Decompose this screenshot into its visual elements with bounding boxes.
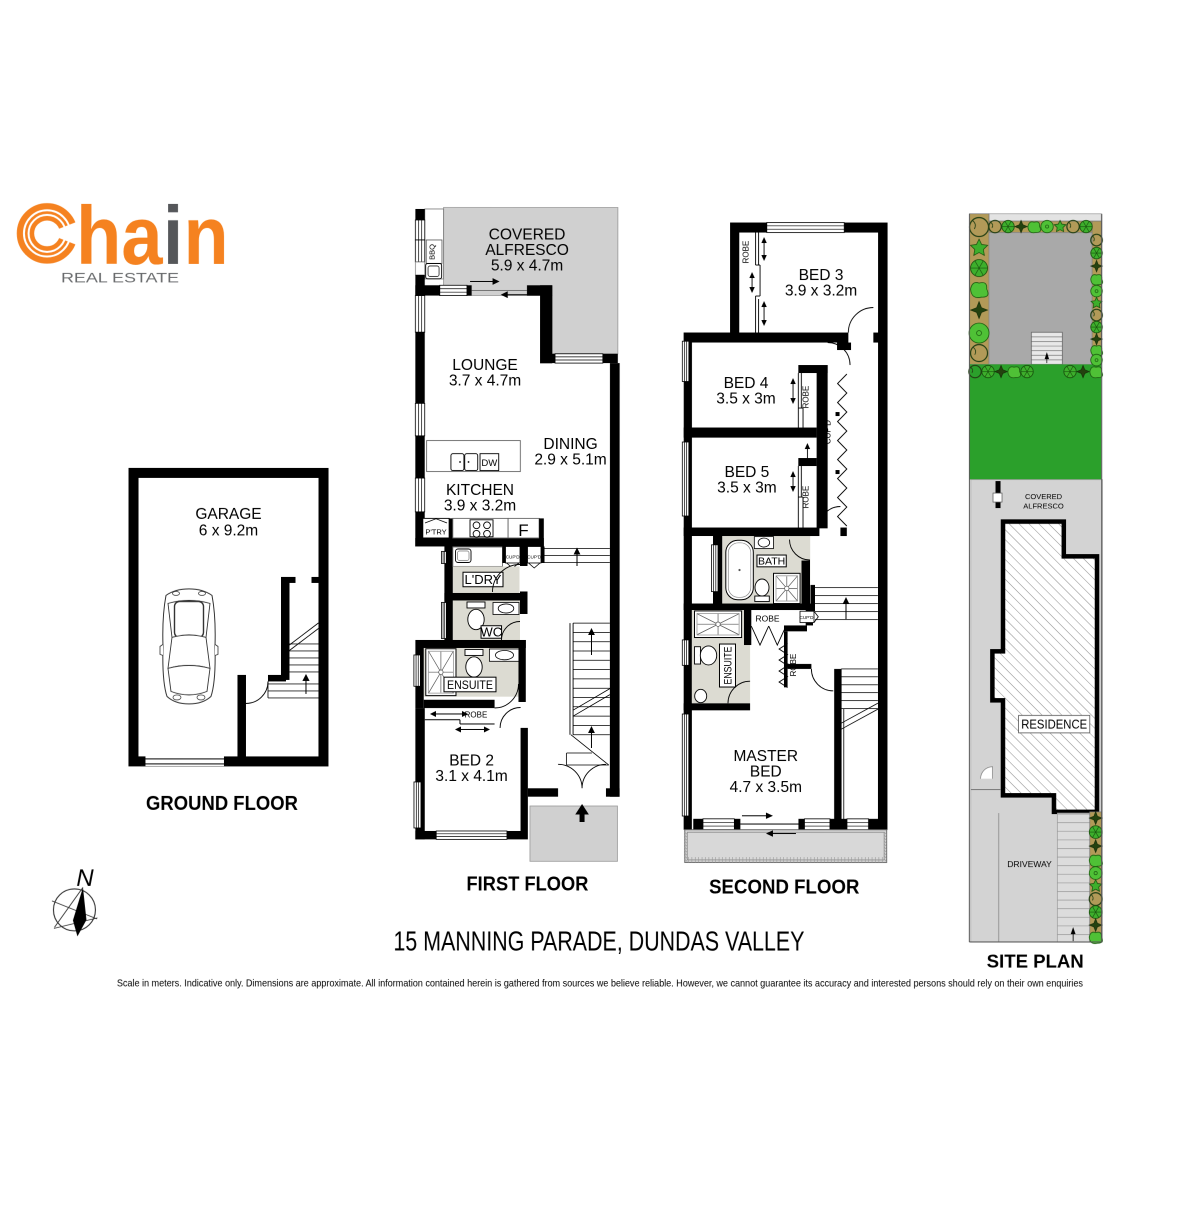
svg-text:ROBE: ROBE [802,486,811,509]
svg-text:ROBE: ROBE [755,614,779,624]
svg-text:N: N [76,865,94,892]
svg-text:COVERED: COVERED [489,226,566,243]
svg-text:ROBE: ROBE [802,386,811,409]
svg-text:BED 5: BED 5 [725,464,770,481]
svg-text:RESIDENCE: RESIDENCE [1021,718,1087,732]
svg-text:DINING: DINING [543,436,597,453]
svg-text:ALFRESCO: ALFRESCO [1023,502,1064,511]
svg-text:i: i [163,189,183,282]
svg-text:KITCHEN: KITCHEN [446,482,514,499]
svg-text:ENSUITE: ENSUITE [447,678,493,692]
svg-text:3.5 x 3m: 3.5 x 3m [717,480,776,497]
svg-text:5.9 x 4.7m: 5.9 x 4.7m [491,257,563,274]
svg-text:DRIVEWAY: DRIVEWAY [1007,859,1052,869]
svg-text:CUP'D: CUP'D [800,615,815,620]
svg-text:WC: WC [480,625,502,640]
svg-text:BATH: BATH [758,556,785,568]
svg-text:3.9 x 3.2m: 3.9 x 3.2m [444,497,516,514]
svg-text:MASTER: MASTER [733,748,798,765]
svg-text:3.1 x 4.1m: 3.1 x 4.1m [435,768,507,785]
svg-text:3.9 x 3.2m: 3.9 x 3.2m [785,283,857,300]
svg-text:GROUND FLOOR: GROUND FLOOR [146,792,298,815]
svg-text:CUP'D: CUP'D [527,554,542,559]
svg-text:REAL ESTATE: REAL ESTATE [61,270,179,285]
svg-text:ENSUITE: ENSUITE [722,647,734,685]
svg-text:ROBE: ROBE [742,241,751,264]
svg-text:GARAGE: GARAGE [195,506,261,523]
svg-text:BED 4: BED 4 [724,375,769,392]
svg-text:P'TRY: P'TRY [425,527,446,536]
svg-text:BED: BED [750,764,782,781]
svg-text:F: F [518,521,528,540]
svg-text:3.7 x 4.7m: 3.7 x 4.7m [449,372,521,389]
svg-text:SITE PLAN: SITE PLAN [987,951,1084,971]
svg-text:FIRST FLOOR: FIRST FLOOR [466,873,588,896]
svg-text:6 x 9.2m: 6 x 9.2m [199,522,258,539]
svg-text:DW: DW [481,458,497,469]
svg-text:LOUNGE: LOUNGE [452,357,517,374]
svg-text:ROBE: ROBE [465,710,488,719]
svg-text:3.5 x 3m: 3.5 x 3m [716,391,775,408]
svg-text:COVERED: COVERED [1025,492,1063,501]
svg-text:CUP'D: CUP'D [824,420,833,444]
svg-text:BED 3: BED 3 [799,267,844,284]
svg-text:2.9 x 5.1m: 2.9 x 5.1m [534,451,606,468]
svg-text:Scale in meters. Indicative on: Scale in meters. Indicative only. Dimens… [117,978,1083,989]
svg-text:15 MANNING PARADE, DUNDAS VALL: 15 MANNING PARADE, DUNDAS VALLEY [393,925,804,956]
svg-text:BED 2: BED 2 [449,752,494,769]
svg-text:CUP'D: CUP'D [506,554,521,559]
svg-text:n: n [184,189,229,282]
svg-text:4.7 x 3.5m: 4.7 x 3.5m [730,779,802,796]
svg-text:L'DRY: L'DRY [465,572,502,587]
svg-text:SECOND FLOOR: SECOND FLOOR [709,876,860,899]
svg-text:ALFRESCO: ALFRESCO [485,242,569,259]
svg-text:BBQ: BBQ [428,244,437,260]
svg-text:ha: ha [76,189,163,282]
